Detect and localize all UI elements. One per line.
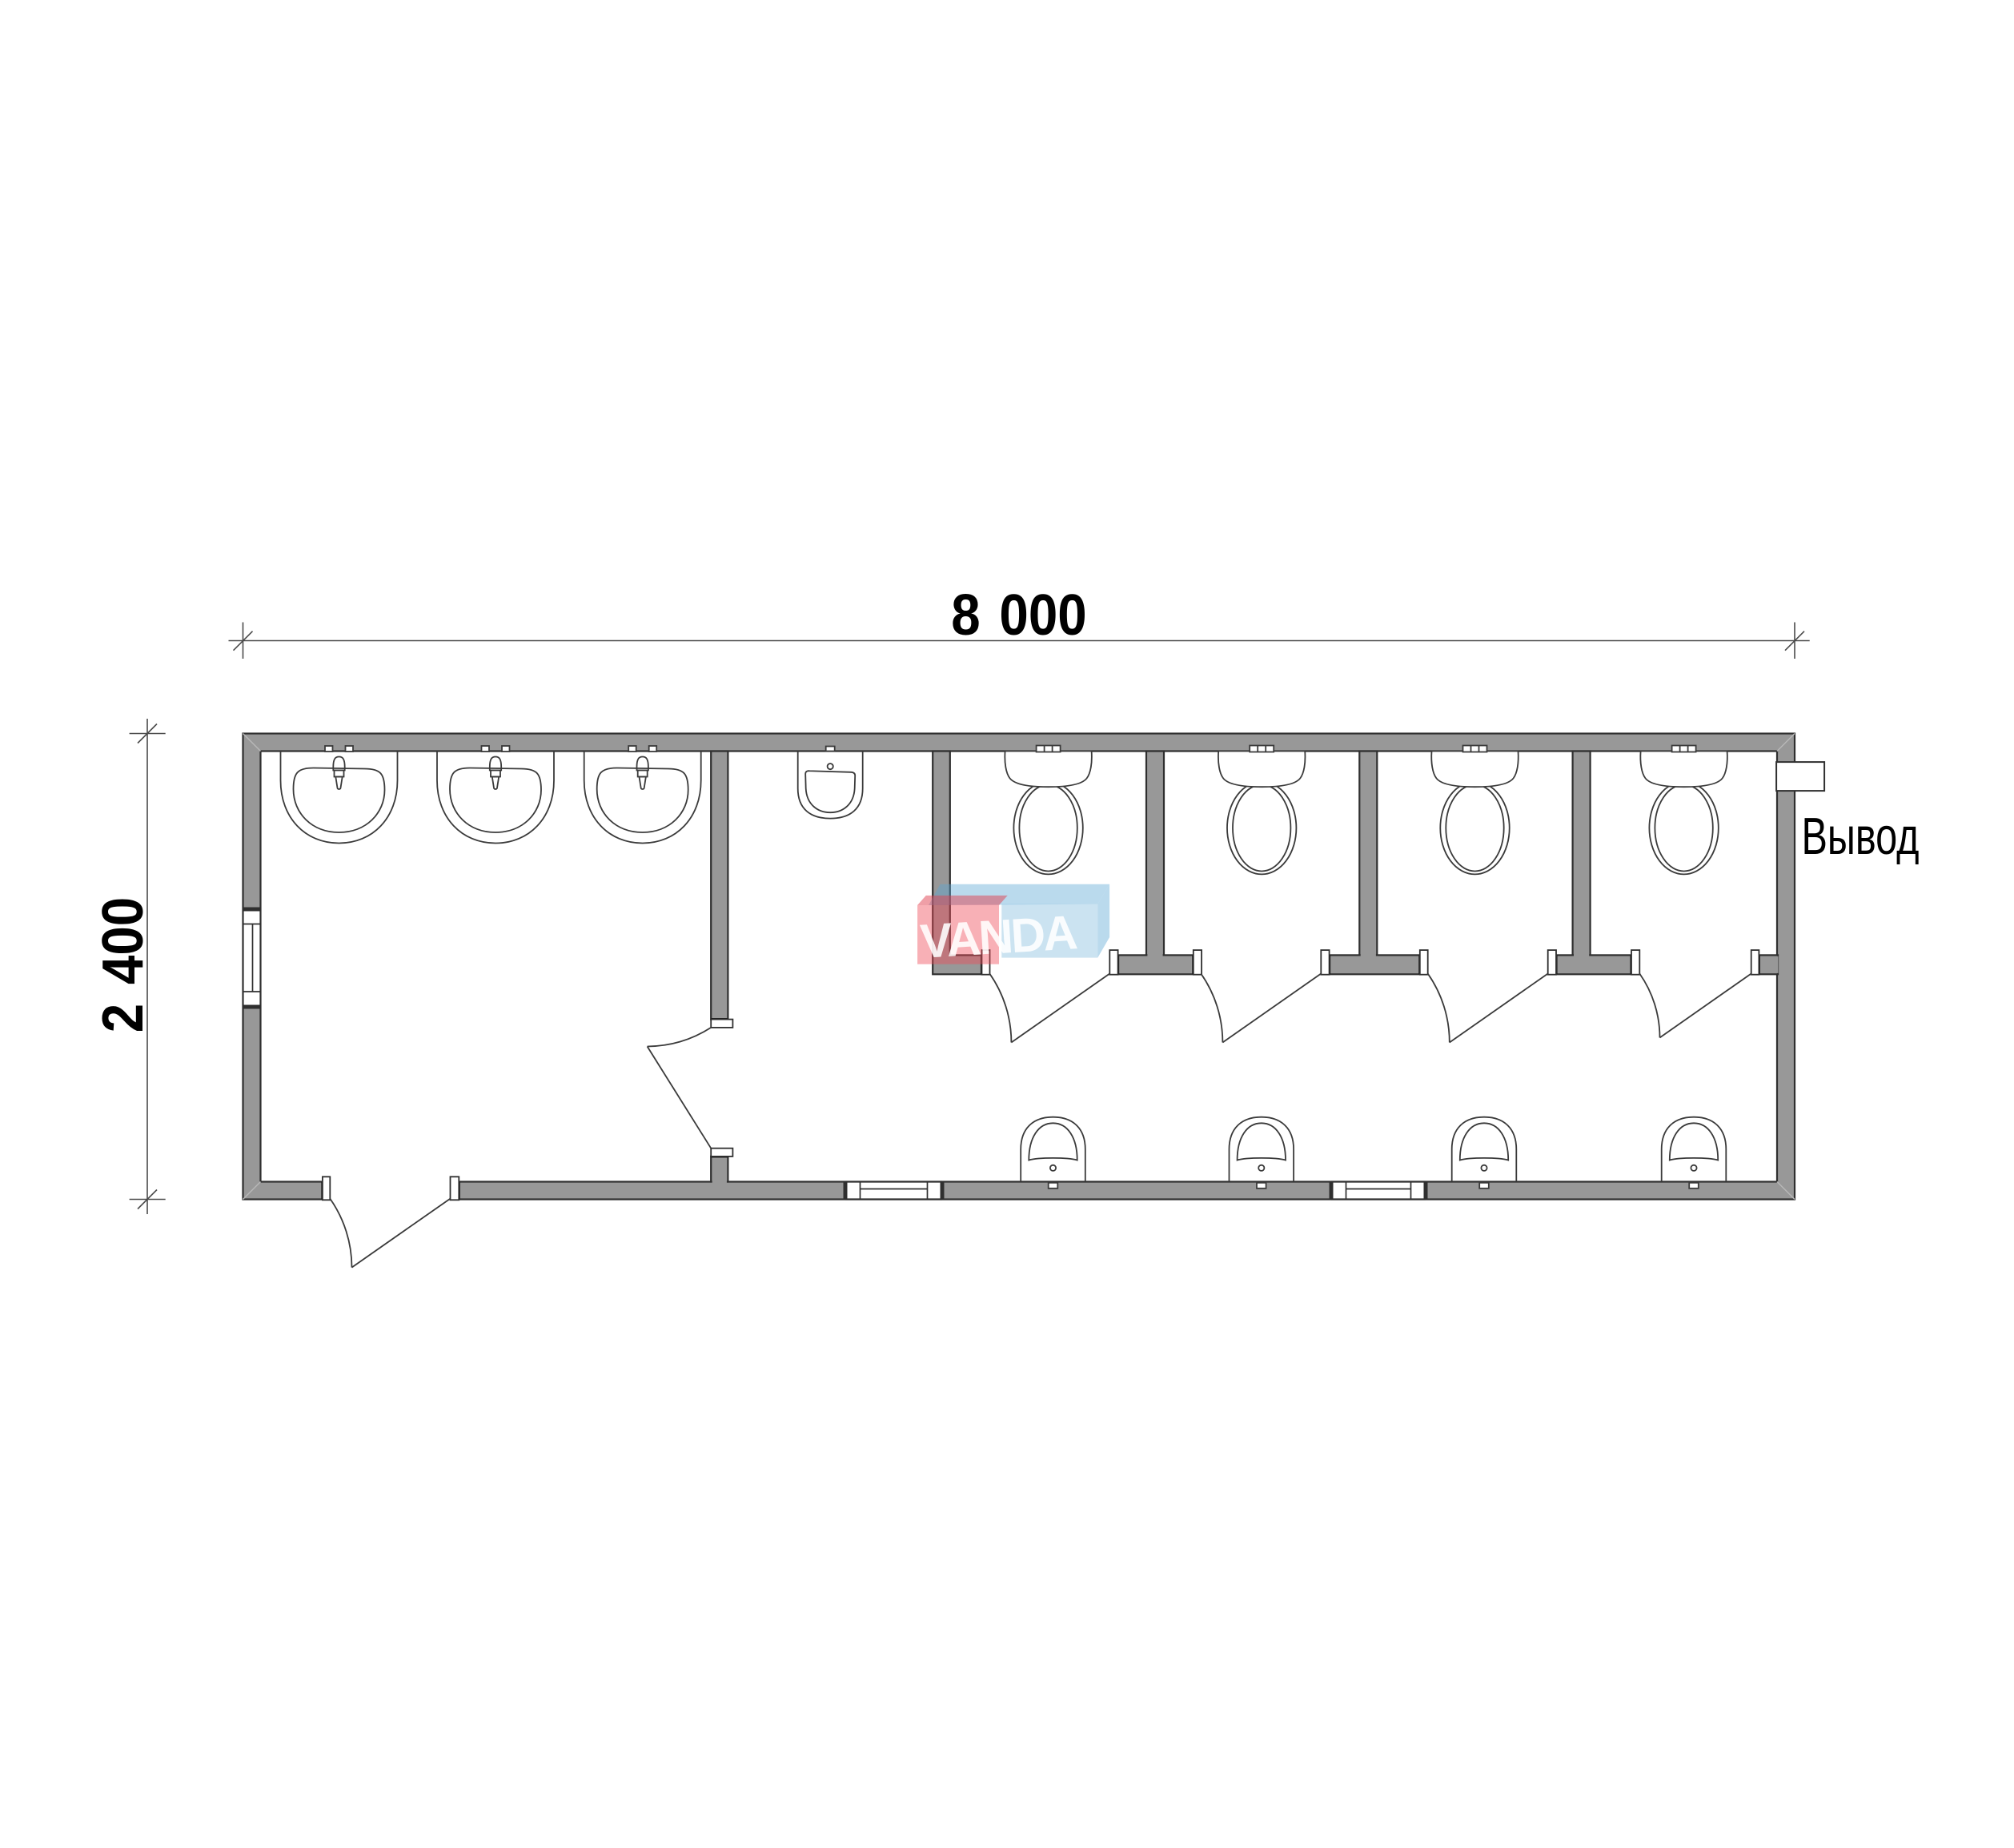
- svg-text:2 400: 2 400: [90, 897, 155, 1032]
- svg-text:Вывод: Вывод: [1802, 808, 1920, 865]
- svg-text:8 000: 8 000: [951, 583, 1086, 647]
- svg-text:VANDA: VANDA: [919, 905, 1078, 968]
